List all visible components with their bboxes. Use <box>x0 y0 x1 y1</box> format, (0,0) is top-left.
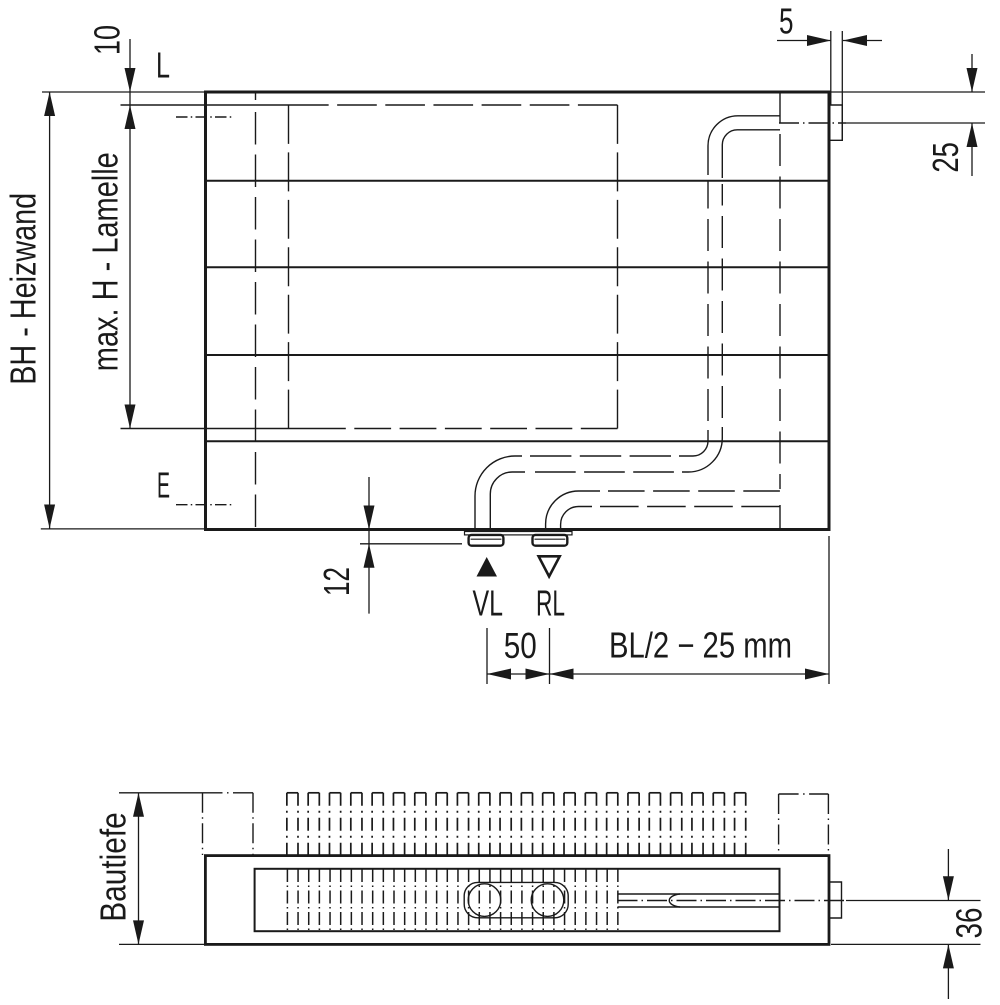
svg-text:RL: RL <box>536 583 565 624</box>
svg-text:36: 36 <box>949 908 990 939</box>
svg-text:BH - Heizwand: BH - Heizwand <box>3 193 44 385</box>
svg-text:VL: VL <box>472 583 503 624</box>
svg-text:5: 5 <box>779 0 794 41</box>
svg-text:12: 12 <box>316 567 357 596</box>
svg-text:25: 25 <box>925 142 966 173</box>
svg-text:L: L <box>156 45 170 86</box>
svg-text:10: 10 <box>87 25 128 55</box>
svg-text:Bautiefe: Bautiefe <box>93 812 134 922</box>
svg-text:max. H - Lamelle: max. H - Lamelle <box>85 152 126 371</box>
svg-text:50: 50 <box>504 625 537 666</box>
svg-text:BL/2 − 25 mm: BL/2 − 25 mm <box>609 625 792 666</box>
svg-text:E: E <box>157 465 170 506</box>
